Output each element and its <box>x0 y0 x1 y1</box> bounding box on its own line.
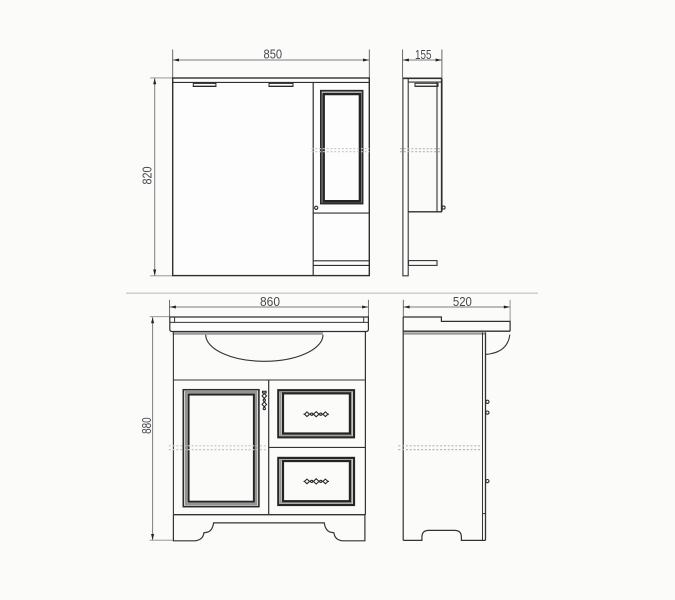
svg-text:520: 520 <box>453 294 472 309</box>
svg-text:860: 860 <box>260 294 280 309</box>
svg-text:820: 820 <box>139 167 154 185</box>
svg-text:850: 850 <box>264 46 283 61</box>
svg-text:155: 155 <box>415 47 432 62</box>
svg-text:880: 880 <box>139 417 154 434</box>
